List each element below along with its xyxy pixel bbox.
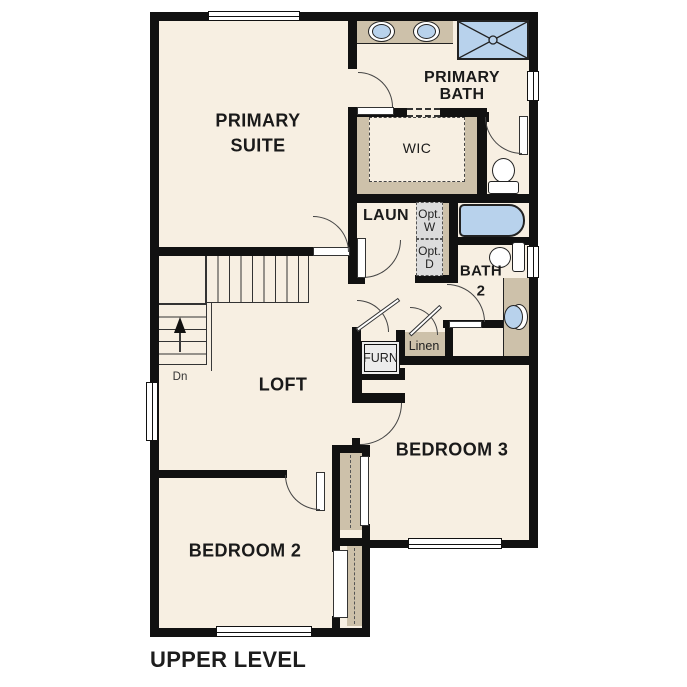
- wall: [348, 194, 538, 203]
- optional-washer-label-line1: Opt.: [418, 208, 441, 221]
- toilet-tank: [512, 242, 525, 272]
- stairs-lower-flight: [158, 303, 207, 365]
- bedroom3-closet-rod-line: [350, 455, 351, 528]
- wall-exterior-closet-right: [362, 540, 370, 637]
- door-leaf-primary-bath: [357, 107, 394, 115]
- room-label-bedroom2: BEDROOM 2: [189, 541, 302, 562]
- room-label-primary-suite-line1: PRIMARY: [215, 111, 300, 132]
- stairs-direction-arrow-head: [174, 317, 186, 333]
- window: [216, 626, 312, 637]
- toilet-tank: [488, 181, 519, 194]
- optional-dryer-label-line2: D: [425, 258, 434, 271]
- sink: [372, 24, 391, 39]
- wall-exterior-left: [150, 12, 159, 637]
- wic-dashed-opening: [407, 108, 440, 117]
- room-label-bath2-line1: BATH: [460, 263, 502, 280]
- room-label-primary-suite-line2: SUITE: [230, 136, 285, 157]
- room-label-primary-bath-line1: PRIMARY: [424, 69, 500, 87]
- sink: [417, 24, 436, 39]
- bedroom3-closet-shelf: [340, 453, 362, 530]
- optional-dryer-label-line1: Opt.: [418, 245, 441, 258]
- wall: [332, 445, 340, 538]
- shower-glass-lines: [459, 22, 527, 58]
- wall: [150, 247, 313, 256]
- window: [527, 71, 539, 101]
- optional-dryer: Opt. D: [416, 239, 443, 276]
- toilet-bowl: [492, 158, 515, 183]
- floor-plan: Opt. W Opt. D FURN PRIMARY SUITE PRIMARY…: [0, 0, 687, 687]
- room-label-bedroom3: BEDROOM 3: [396, 440, 509, 461]
- closet-sliding-door-bedroom3: [360, 456, 369, 526]
- sink: [504, 305, 523, 329]
- room-label-loft: LOFT: [259, 375, 308, 396]
- stairs-direction-arrow-shaft: [179, 332, 181, 352]
- plan-title: UPPER LEVEL: [150, 647, 306, 673]
- stairs-edge-line: [211, 303, 212, 371]
- wall: [362, 524, 370, 538]
- stairs-upper-flight: [205, 255, 309, 303]
- window: [408, 538, 502, 549]
- bedroom2-closet-rod-line: [354, 548, 355, 624]
- shower: [457, 20, 529, 60]
- bathtub: [459, 204, 525, 237]
- window: [146, 382, 158, 441]
- wall: [150, 470, 287, 478]
- window: [208, 11, 300, 21]
- stairs-direction-label: Dn: [173, 371, 188, 383]
- wall: [415, 275, 458, 283]
- closet-sliding-door-bedroom2: [333, 550, 348, 618]
- optional-washer-label-line2: W: [424, 221, 435, 234]
- door-leaf-bath2: [449, 321, 482, 328]
- wall: [352, 438, 360, 450]
- window: [527, 246, 539, 278]
- room-label-linen: Linen: [409, 339, 440, 353]
- furnace-label: FURN: [364, 344, 397, 372]
- wall: [396, 356, 529, 365]
- furnace-unit: FURN: [361, 341, 400, 375]
- room-label-laundry: LAUN: [363, 207, 409, 225]
- room-label-primary-bath-line2: BATH: [440, 86, 485, 104]
- optional-washer: Opt. W: [416, 202, 443, 239]
- room-label-wic: WIC: [403, 140, 431, 156]
- room-label-bath2-line2: 2: [477, 283, 486, 300]
